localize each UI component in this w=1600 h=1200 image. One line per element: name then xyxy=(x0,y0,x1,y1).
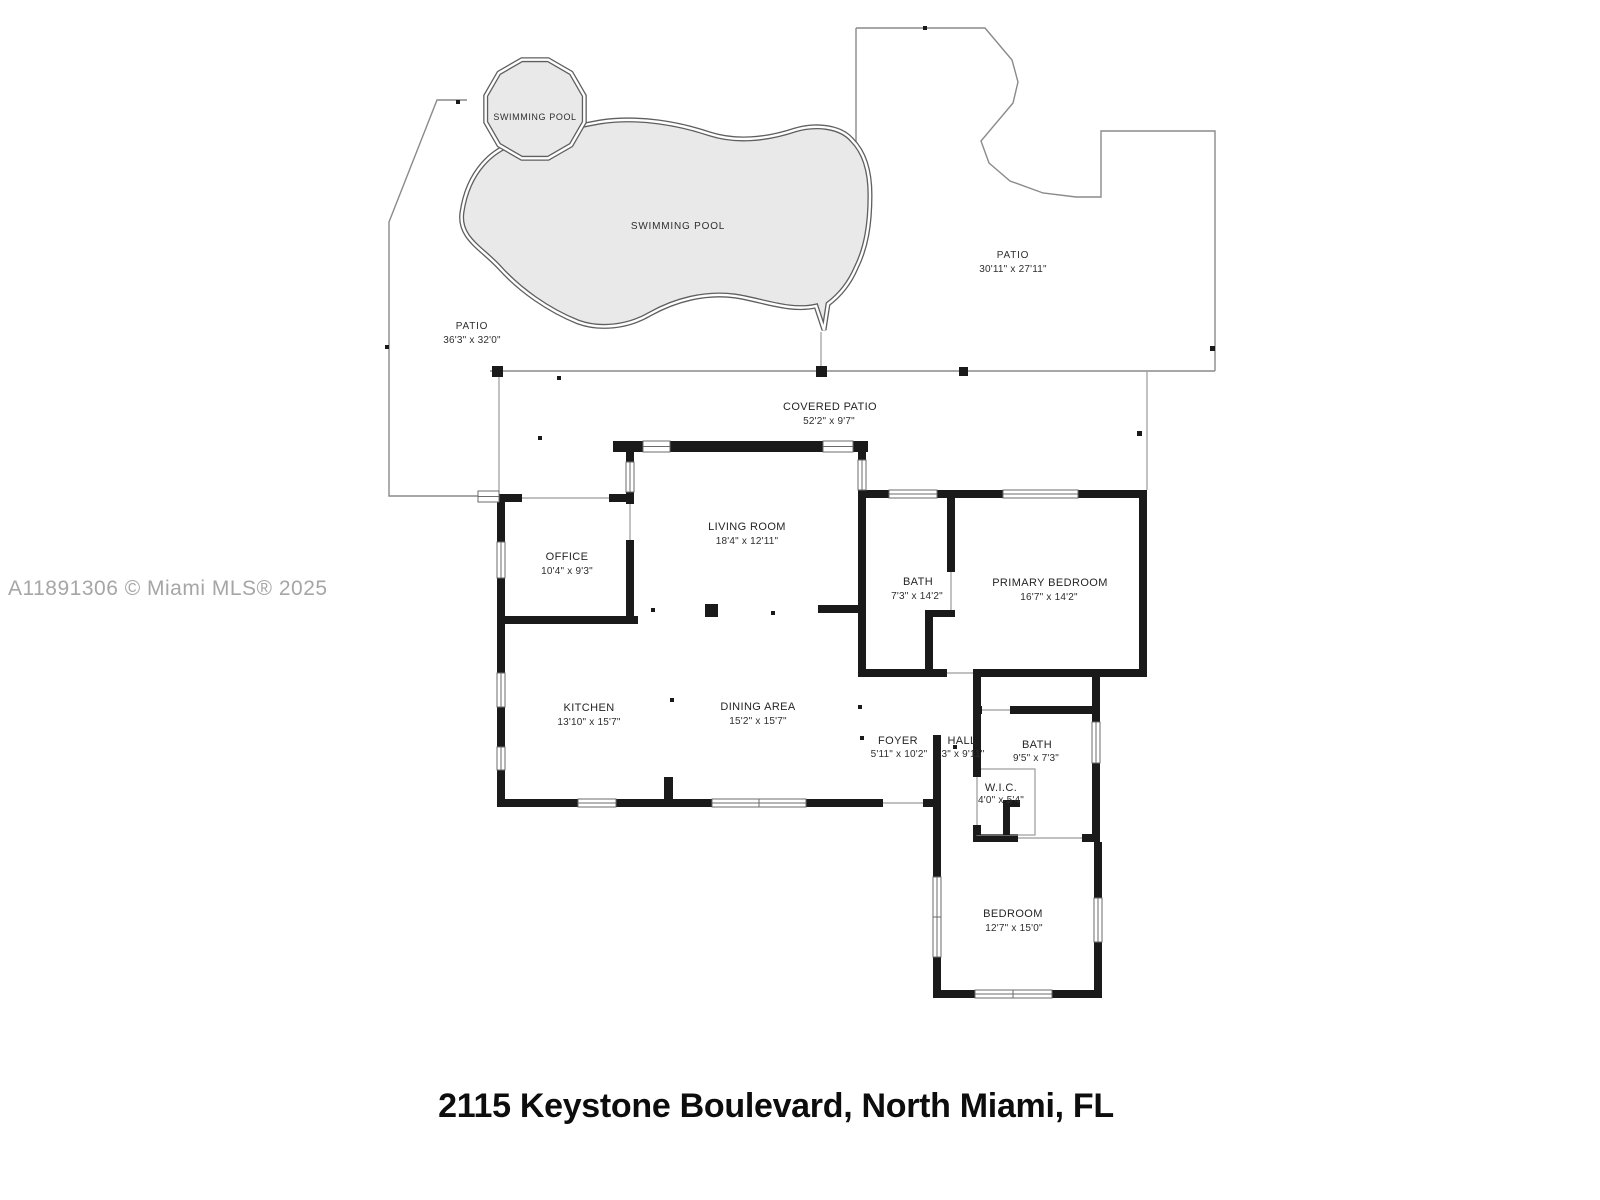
window xyxy=(578,799,616,807)
window xyxy=(497,747,505,770)
window xyxy=(626,462,634,492)
wall xyxy=(1094,842,1102,898)
wall xyxy=(1078,490,1147,498)
wall xyxy=(858,490,866,613)
floor-plan-page: SWIMMING POOL SWIMMING POOL xyxy=(0,0,1600,1200)
tick-mark xyxy=(771,611,775,615)
window xyxy=(497,673,505,707)
wall xyxy=(670,441,823,452)
tick-mark xyxy=(670,698,674,702)
wall xyxy=(933,990,975,998)
wall xyxy=(1003,807,1010,835)
window xyxy=(478,491,499,502)
room-dims-hall: 3" x 9'11" xyxy=(941,749,984,760)
room-dims-wic: 4'0" x 5'4" xyxy=(978,795,1024,806)
room-dims-foyer: 5'11" x 10'2" xyxy=(871,749,928,760)
small-pool-label: SWIMMING POOL xyxy=(493,112,576,122)
tick-mark xyxy=(538,436,542,440)
room-label-foyer: FOYER xyxy=(878,735,918,747)
wall xyxy=(925,617,933,677)
tick-mark xyxy=(923,26,927,30)
wall xyxy=(1139,490,1147,677)
wall xyxy=(933,735,941,807)
wall xyxy=(1082,834,1100,842)
tick-mark xyxy=(1137,431,1142,436)
patio-right-dims: 30'11" x 27'11" xyxy=(979,264,1047,275)
swimming-pools: SWIMMING POOL SWIMMING POOL xyxy=(462,60,870,330)
wall xyxy=(973,677,981,710)
window xyxy=(497,542,505,578)
patio-left-label: PATIO xyxy=(456,321,489,332)
tick-mark xyxy=(858,705,862,709)
wall xyxy=(497,624,505,673)
window xyxy=(643,441,670,452)
wall xyxy=(937,490,1003,498)
wall xyxy=(626,540,634,624)
wall xyxy=(1094,942,1102,998)
room-dims-living-room: 18'4" x 12'11" xyxy=(716,536,779,547)
wall xyxy=(933,807,941,877)
room-dims-dining-area: 15'2" x 15'7" xyxy=(729,716,787,727)
tick-mark xyxy=(385,345,389,349)
mls-watermark: A11891306 © Miami MLS® 2025 xyxy=(8,577,328,600)
patio-post xyxy=(816,366,827,377)
patio-left-dims: 36'3" x 32'0" xyxy=(443,335,501,346)
window xyxy=(1003,490,1078,498)
wall xyxy=(858,452,866,460)
wall xyxy=(1092,677,1100,710)
wall xyxy=(497,616,638,624)
room-dims-primary-bedroom: 16'7" x 14'2" xyxy=(1020,592,1078,603)
tick-mark xyxy=(557,376,561,380)
wall xyxy=(1052,990,1102,998)
tick-mark xyxy=(651,608,655,612)
wall xyxy=(1092,763,1100,842)
tick-mark xyxy=(1210,346,1215,351)
wall xyxy=(973,669,1139,677)
room-dims-kitchen: 13'10" x 15'7" xyxy=(557,717,620,728)
window xyxy=(975,990,1052,998)
room-label-primary-bedroom: PRIMARY BEDROOM xyxy=(992,577,1108,589)
wall xyxy=(497,799,578,807)
wall xyxy=(973,706,982,714)
wall xyxy=(866,490,889,498)
window xyxy=(1094,898,1102,942)
window xyxy=(933,877,941,957)
covered-patio-dims: 52'2" x 9'7" xyxy=(803,416,855,427)
patio-right-outline xyxy=(856,28,1215,371)
wall xyxy=(853,441,868,452)
wall xyxy=(626,452,634,462)
room-label-office: OFFICE xyxy=(546,551,589,563)
wall xyxy=(935,669,947,677)
patio-post xyxy=(492,366,503,377)
wall xyxy=(497,770,505,807)
wall xyxy=(925,610,955,617)
wall xyxy=(1010,706,1100,714)
wall xyxy=(616,799,712,807)
room-label-living-room: LIVING ROOM xyxy=(708,521,786,533)
tick-mark xyxy=(860,736,864,740)
wall xyxy=(947,490,955,572)
wall xyxy=(664,777,673,799)
room-dims-bedroom: 12'7" x 15'0" xyxy=(985,923,1043,934)
patio-right-label: PATIO xyxy=(997,250,1030,261)
room-dims-office: 10'4" x 9'3" xyxy=(541,566,593,577)
large-pool-label: SWIMMING POOL xyxy=(631,221,725,232)
window xyxy=(712,799,806,807)
wall xyxy=(609,494,634,502)
wall xyxy=(973,767,981,777)
wall xyxy=(973,825,981,835)
room-dims-bath-primary: 7'3" x 14'2" xyxy=(891,591,943,602)
room-dims-bath-hall: 9'5" x 7'3" xyxy=(1013,753,1059,764)
patio-post xyxy=(959,367,968,376)
window xyxy=(858,460,866,490)
room-label-hall: HALL xyxy=(947,735,976,747)
floor-plan-drawing: SWIMMING POOL SWIMMING POOL xyxy=(0,0,1600,1200)
wall xyxy=(858,613,866,677)
window xyxy=(823,441,853,452)
room-label-bath-primary: BATH xyxy=(903,576,933,588)
window xyxy=(1092,722,1100,763)
wall xyxy=(806,799,883,807)
wall xyxy=(1092,714,1100,722)
window xyxy=(889,490,937,498)
covered-patio-label: COVERED PATIO xyxy=(783,401,877,413)
room-label-dining-area: DINING AREA xyxy=(720,701,796,713)
patio-left-outline xyxy=(389,100,478,496)
small-pool-shape xyxy=(486,60,585,159)
wall xyxy=(858,669,935,677)
room-label-bath-hall: BATH xyxy=(1022,739,1052,751)
wall xyxy=(613,441,643,452)
wall xyxy=(497,707,505,747)
room-label-wic: W.I.C. xyxy=(985,782,1017,794)
room-label-kitchen: KITCHEN xyxy=(563,702,614,714)
tick-mark xyxy=(456,100,460,104)
wall xyxy=(923,799,941,807)
wall xyxy=(818,605,866,613)
room-label-bedroom: BEDROOM xyxy=(983,908,1043,920)
living-room-post xyxy=(705,604,718,617)
address-title: 2115 Keystone Boulevard, North Miami, FL xyxy=(438,1087,1114,1125)
